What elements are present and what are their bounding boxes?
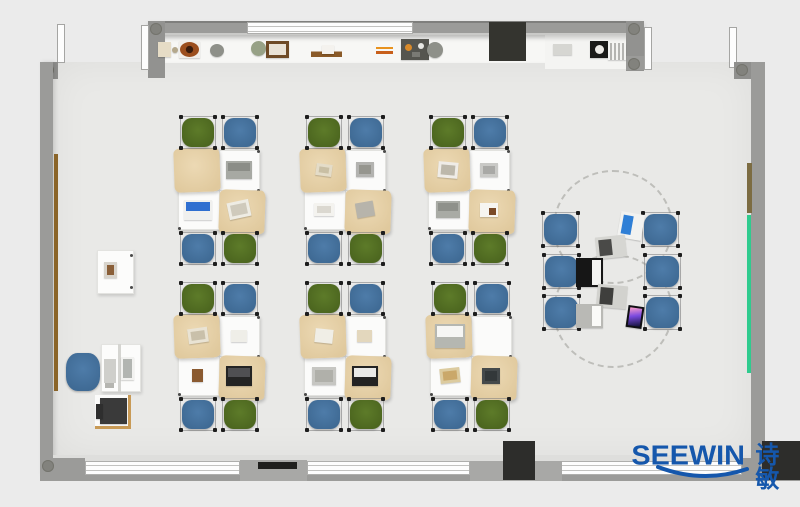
right-rail-brown [747,163,752,213]
seewin-logo: SEEWIN 诗敏 [629,441,800,492]
desk-leg-dot [383,316,386,319]
student-chair-green [348,232,384,265]
chair-foot [471,262,475,266]
chair-foot [381,115,385,119]
desk-leg-dot [178,227,181,230]
chair-seat [308,284,340,313]
student-chair-green [180,282,216,315]
desk-leg-dot [304,227,307,230]
chair-foot [347,312,351,316]
desk-mat [173,147,221,193]
chair-seat [644,214,677,245]
desk-leg-dot [507,150,510,153]
student-chair-green [430,116,466,149]
door-frame-2 [141,25,149,70]
notebook [439,367,460,384]
chair-seat [432,234,464,263]
chair-seat [350,234,382,263]
chair-foot [643,286,647,290]
student-chair-blue [222,282,258,315]
chair-foot [678,294,682,298]
discussion-chair-blue [543,254,580,289]
bottom-black-strip [258,462,297,469]
student-chair-green [474,398,510,431]
coffee-machine [590,41,608,58]
white-laptop [576,304,603,328]
student-chair-blue [432,398,468,431]
chair-foot [381,281,385,285]
right-rail-green [747,215,751,373]
paper [314,328,333,344]
printer [100,398,127,424]
chair-foot [576,244,580,248]
student-chair-blue [474,282,510,315]
printer-tray [96,404,103,419]
chair-foot [576,211,580,215]
student-chair-blue [348,282,384,315]
chair-foot [213,397,217,401]
chair-foot [429,262,433,266]
desk-pad [104,359,116,383]
bottom-window-1 [85,461,240,475]
chair-seat [545,297,578,328]
student-chair-green [432,282,468,315]
keyboard [105,383,114,388]
student-chair-blue [472,116,508,149]
chair-foot [471,146,475,150]
laptop [226,161,252,179]
chair-seat [646,297,679,328]
item-screen [443,370,458,380]
laptop-open [435,324,465,348]
photo [269,44,286,55]
chair-seat [66,353,100,391]
chair-foot [678,286,682,290]
left-rail-brown [54,154,58,391]
chair-foot [347,428,351,432]
vent-grille [608,43,626,60]
bowl [179,41,200,58]
chair-foot [305,428,309,432]
chair-foot [179,262,183,266]
floor-plan: SEEWIN 诗敏 [0,0,800,507]
item-screen [228,163,250,171]
chair-foot [542,286,546,290]
wall-cabinet [489,22,526,61]
chair-foot [643,294,647,298]
desk-leg-dot [509,316,512,319]
laptop-black [226,366,252,386]
chair-foot [577,294,581,298]
counter-box [553,44,572,55]
floor-plan-scene [0,0,800,507]
chair-seat [434,400,466,429]
chair-foot [213,262,217,266]
phone [626,305,645,329]
chair-seat [224,284,256,313]
item-screen [441,164,456,175]
tablet-dark [482,368,500,384]
chair-seat [350,400,382,429]
discussion-chair-blue [543,295,580,330]
paper-tan [357,330,372,342]
chair-foot [347,262,351,266]
discussion-chair-blue [644,295,681,330]
chair-foot [429,231,433,235]
plant [251,41,266,56]
student-chair-blue [180,232,216,265]
item-screen [483,166,495,174]
chair-foot [678,253,682,257]
black-laptop [576,258,603,287]
chair-foot [213,231,217,235]
chair-foot [347,281,351,285]
logo-swoosh-icon [655,464,750,480]
chair-foot [221,115,225,119]
chair-foot [643,327,647,331]
student-chair-green [348,398,384,431]
chair-seat [476,400,508,429]
desk-organizer [401,39,429,60]
chair-foot [305,146,309,150]
chair-foot [347,231,351,235]
chair-seat [646,256,679,287]
photo-frame [266,41,289,58]
chair-foot [676,244,680,248]
wood-tray [311,45,342,57]
chair-foot [465,281,469,285]
chair-foot [381,146,385,150]
tablet [356,162,374,177]
book [480,163,498,177]
chair-foot [255,146,259,150]
chair-foot [305,312,309,316]
monitor-screen [123,359,132,378]
chair-foot [577,253,581,257]
laptop-black [352,366,378,386]
chair-foot [221,428,225,432]
chair-seat [308,400,340,429]
chair-foot [221,231,225,235]
item-screen [438,203,458,211]
item-screen [315,370,333,382]
student-chair-blue [430,232,466,265]
chair-foot [463,146,467,150]
planter-pot [210,44,224,57]
chair-foot [429,146,433,150]
student-chair-green [306,116,342,149]
student-chair-green [472,232,508,265]
discussion-chair-blue [644,254,681,289]
tray-item-orange [405,44,412,51]
student-chair-green [222,398,258,431]
chair-foot [221,262,225,266]
chair-foot [643,253,647,257]
item-screen [621,215,634,235]
item-screen [592,260,601,285]
teacher-office-chair [63,350,103,394]
chair-foot [431,428,435,432]
plank-box [322,45,334,54]
open-book [437,161,458,179]
chair-foot [255,231,259,235]
item-screen [317,206,331,213]
chair-seat [224,400,256,429]
chair-foot [339,312,343,316]
pillar-cap [42,460,54,472]
item-screen [186,202,210,211]
device-pad [595,234,627,259]
chair-foot [463,115,467,119]
chair-foot [339,281,343,285]
chair-foot [347,115,351,119]
chair-seat [432,118,464,147]
chair-foot [431,397,435,401]
planter-pot-2 [427,42,443,58]
chair-seat [224,234,256,263]
item-screen [489,208,496,215]
discussion-chair-blue [642,212,679,247]
chair-foot [213,428,217,432]
cloth [355,201,375,219]
student-chair-blue [180,398,216,431]
chair-foot [505,231,509,235]
chair-foot [347,146,351,150]
item-screen [437,326,463,337]
desk-leg-dot [130,286,133,289]
chair-foot [213,312,217,316]
chair-foot [213,281,217,285]
item-screen [190,330,205,341]
tray-item-dark [412,52,420,57]
student-chair-green [180,116,216,149]
laptop-blue-screen [184,200,212,220]
student-chair-blue [306,398,342,431]
item-screen [598,239,612,256]
chair-foot [347,397,351,401]
student-chair-blue [306,232,342,265]
chair-foot [678,327,682,331]
chair-foot [179,231,183,235]
chair-foot [339,397,343,401]
chair-foot [179,281,183,285]
bottom-block-left [40,458,85,481]
chair-seat [545,256,578,287]
chair-foot [473,312,477,316]
chair-foot [676,211,680,215]
chair-foot [471,115,475,119]
chair-foot [179,397,183,401]
chair-foot [339,231,343,235]
bottom-speaker [503,441,535,480]
chair-foot [179,428,183,432]
chair-seat [224,118,256,147]
chair-seat [182,400,214,429]
chair-foot [221,312,225,316]
tan-box [158,42,171,57]
chair-foot [471,231,475,235]
chair-foot [221,397,225,401]
chair-foot [179,115,183,119]
door-frame-3 [644,27,652,70]
chair-foot [305,262,309,266]
left-wall [40,62,53,474]
chair-foot [305,281,309,285]
picture-on-desk [104,262,117,278]
wood-block [192,369,203,382]
item-screen [230,202,248,216]
small-ball [172,47,178,53]
right-wall [751,62,765,474]
item-screen [354,368,376,377]
chair-foot [381,262,385,266]
chair-foot [255,428,259,432]
chair-foot [505,115,509,119]
chair-seat [182,118,214,147]
item-screen [359,165,371,174]
gray-pad [312,367,336,385]
paper [231,330,247,342]
chair-foot [255,397,259,401]
bowl-ring [180,42,199,57]
pillar-cap [150,23,162,35]
bottom-window-2 [307,461,470,475]
chair-foot [541,211,545,215]
desk-leg-dot [257,316,260,319]
chair-foot [305,115,309,119]
chair-foot [542,294,546,298]
student-chair-green [306,282,342,315]
top-window [247,22,413,34]
chair-foot [463,231,467,235]
chair-foot [542,327,546,331]
item-screen [599,287,613,305]
chair-foot [179,146,183,150]
item-screen [319,166,330,173]
chair-foot [505,262,509,266]
chair-foot [255,281,259,285]
pillar-cap [628,58,640,70]
chair-seat [350,118,382,147]
chair-foot [179,312,183,316]
chair-foot [305,397,309,401]
student-chair-green [222,232,258,265]
desk-leg-dot [257,150,260,153]
chair-foot [381,231,385,235]
desk-leg-dot [178,393,181,396]
chair-foot [305,231,309,235]
chair-seat [476,284,508,313]
chair-foot [507,281,511,285]
door-frame-1 [57,24,65,63]
chair-foot [465,428,469,432]
chair-foot [213,146,217,150]
desk-leg-dot [428,227,431,230]
chair-seat [544,214,577,245]
logo-text-cn: 诗敏 [755,444,800,492]
book [314,203,334,216]
book [187,327,209,345]
chair-foot [541,244,545,248]
chair-foot [473,281,477,285]
machine-door [595,45,604,54]
student-chair-blue [222,116,258,149]
chair-foot [431,281,435,285]
pencils [376,47,393,54]
chair-foot [473,397,477,401]
item-screen [592,306,601,326]
item-screen [485,371,497,381]
chair-foot [339,146,343,150]
chair-foot [465,312,469,316]
desk-leg-dot [130,254,133,257]
chair-foot [255,262,259,266]
pillar-cap [628,23,640,35]
chair-foot [339,262,343,266]
chair-foot [339,115,343,119]
desk-leg-dot [383,150,386,153]
laptop [436,201,460,218]
chair-seat [434,284,466,313]
chair-seat [474,234,506,263]
item-screen [628,307,642,326]
desk-leg-dot [430,393,433,396]
picture-photo [107,265,114,275]
item-screen [228,368,250,377]
chair-seat [308,234,340,263]
chair-seat [182,284,214,313]
student-chair-blue [348,116,384,149]
discussion-chair-blue [542,212,579,247]
chair-foot [339,428,343,432]
chair-foot [255,115,259,119]
tray-item-white [418,43,424,49]
chair-foot [507,312,511,316]
chair-foot [429,115,433,119]
chair-foot [505,146,509,150]
chair-seat [182,234,214,263]
paper [480,203,498,217]
chair-foot [507,428,511,432]
chair-seat [474,118,506,147]
chair-foot [641,244,645,248]
chair-foot [221,281,225,285]
chair-foot [221,146,225,150]
book [315,163,333,177]
chair-foot [381,428,385,432]
chair-foot [463,262,467,266]
chair-foot [213,115,217,119]
logo-wordmark: SEEWIN [629,441,747,471]
chair-foot [507,397,511,401]
chair-foot [381,397,385,401]
desk-leg-dot [304,393,307,396]
monitor [121,357,134,380]
chair-foot [473,428,477,432]
chair-foot [431,312,435,316]
chair-foot [542,253,546,257]
chair-foot [381,312,385,316]
chair-seat [350,284,382,313]
chair-foot [255,312,259,316]
chair-foot [465,397,469,401]
pillar-cap [736,64,748,76]
chair-seat [308,118,340,147]
